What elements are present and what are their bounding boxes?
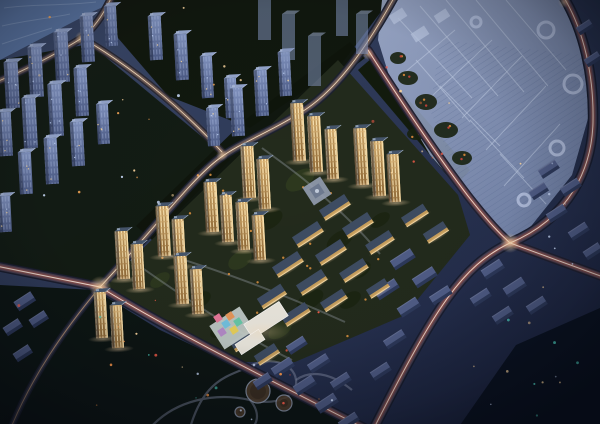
aerial-night-render [0,0,600,424]
vignette [0,0,600,424]
rendering-canvas [0,0,600,424]
